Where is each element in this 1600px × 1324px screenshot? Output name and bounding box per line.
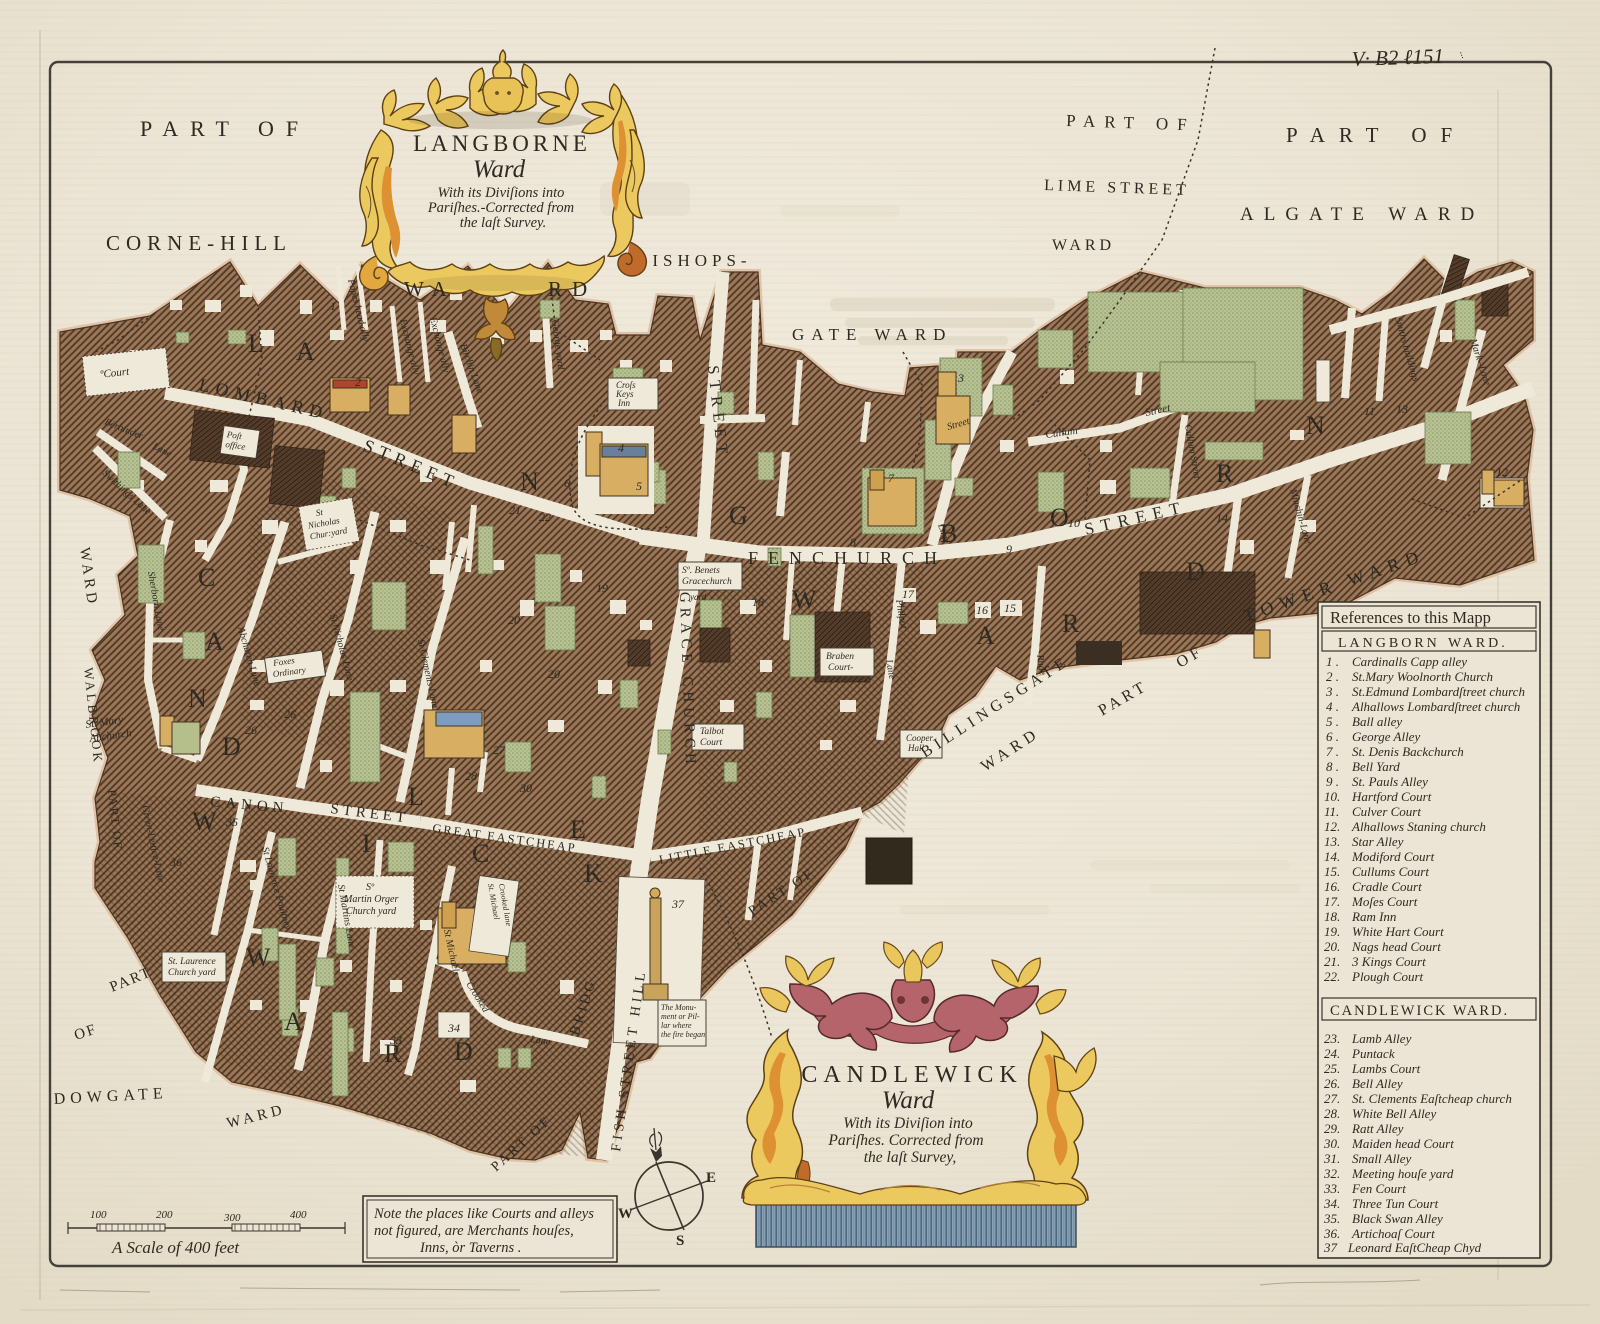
svg-text:15.: 15. bbox=[1324, 864, 1340, 879]
svg-text:20.: 20. bbox=[1324, 939, 1340, 954]
svg-text:15: 15 bbox=[1004, 601, 1016, 615]
svg-text:37: 37 bbox=[1323, 1240, 1338, 1255]
svg-text:Note the places like Courts an: Note the places like Courts and alleys bbox=[373, 1206, 594, 1222]
svg-text:A: A bbox=[284, 1007, 303, 1036]
svg-text:12: 12 bbox=[1496, 465, 1508, 479]
svg-text:St. Clements Eaſtcheap churc: St. Clements Eaſtcheap church bbox=[1352, 1091, 1512, 1106]
svg-text:200: 200 bbox=[156, 1209, 173, 1221]
svg-text:24.: 24. bbox=[1324, 1046, 1340, 1061]
svg-text:3: 3 bbox=[957, 371, 964, 385]
svg-text:E: E bbox=[706, 1170, 716, 1186]
svg-text:Lamb Alley: Lamb Alley bbox=[1351, 1031, 1412, 1046]
svg-text:Meeting houſe yard: Meeting houſe yard bbox=[1351, 1166, 1454, 1181]
svg-text:St.Edmund Lombardſtreet church: St.Edmund Lombardſtreet church bbox=[1352, 684, 1525, 699]
svg-text:Pariſhes. Corrected from: Pariſhes. Corrected from bbox=[827, 1132, 983, 1149]
svg-text:28: 28 bbox=[465, 769, 477, 783]
svg-text:33.: 33. bbox=[1323, 1181, 1340, 1196]
svg-text:35: 35 bbox=[225, 815, 238, 829]
svg-text:2 .: 2 . bbox=[1326, 669, 1339, 684]
svg-text:20: 20 bbox=[548, 667, 560, 681]
svg-text:26: 26 bbox=[245, 723, 257, 737]
svg-text:W: W bbox=[792, 585, 817, 614]
svg-text:2: 2 bbox=[355, 375, 361, 389]
svg-text:Culver Court: Culver Court bbox=[1352, 804, 1421, 819]
svg-text:Artichoaſ Court: Artichoaſ Court bbox=[1351, 1226, 1435, 1241]
svg-text:Cardinalls Capp alley: Cardinalls Capp alley bbox=[1352, 654, 1467, 669]
svg-text:O: O bbox=[1050, 503, 1069, 532]
svg-text:WARD: WARD bbox=[1052, 237, 1115, 254]
svg-text:CORNE-HILL: CORNE-HILL bbox=[106, 231, 292, 255]
svg-text:With its Diviſions into: With its Diviſions into bbox=[438, 185, 565, 201]
svg-text:CANDLEWICK WARD.: CANDLEWICK WARD. bbox=[1330, 1003, 1509, 1019]
svg-text:Pariſhes.-Corrected from: Pariſhes.-Corrected from bbox=[427, 200, 574, 216]
svg-text:36.: 36. bbox=[1323, 1226, 1340, 1241]
svg-text:7 .: 7 . bbox=[1326, 744, 1339, 759]
svg-text:6 .: 6 . bbox=[1326, 729, 1339, 744]
svg-text:26: 26 bbox=[284, 707, 296, 721]
svg-text:300: 300 bbox=[223, 1212, 241, 1224]
svg-text:PART OF: PART OF bbox=[140, 116, 310, 141]
svg-text:Lambs Court: Lambs Court bbox=[1351, 1061, 1421, 1076]
svg-text:19: 19 bbox=[596, 581, 608, 595]
svg-text:Small Alley: Small Alley bbox=[1352, 1151, 1412, 1166]
svg-text:20: 20 bbox=[508, 613, 520, 627]
svg-text:St. Denis Backchurch: St. Denis Backchurch bbox=[1352, 744, 1464, 759]
svg-text:not figured, are Merchants hou: not figured, are Merchants houſes, bbox=[374, 1223, 574, 1239]
svg-text:LANGBORNE: LANGBORNE bbox=[413, 131, 591, 156]
svg-text:N: N bbox=[520, 467, 539, 496]
svg-text:ALGATE WARD: ALGATE WARD bbox=[1240, 204, 1484, 225]
svg-text:1: 1 bbox=[330, 299, 336, 313]
svg-text:CANDLEWICK: CANDLEWICK bbox=[801, 1062, 1022, 1088]
svg-text:25.: 25. bbox=[1324, 1061, 1340, 1076]
svg-text:George Alley: George Alley bbox=[1352, 729, 1420, 744]
svg-text:the laſt Survey.: the laſt Survey. bbox=[460, 215, 547, 231]
svg-text:37: 37 bbox=[671, 897, 685, 911]
svg-text:Plough Court: Plough Court bbox=[1351, 969, 1424, 984]
svg-text:Black Swan Alley: Black Swan Alley bbox=[1352, 1211, 1443, 1226]
svg-text:W: W bbox=[246, 943, 271, 972]
svg-text:34: 34 bbox=[447, 1021, 460, 1035]
svg-text:27: 27 bbox=[493, 743, 506, 757]
svg-text:34.: 34. bbox=[1323, 1196, 1340, 1211]
svg-text:14.: 14. bbox=[1324, 849, 1340, 864]
svg-text:16: 16 bbox=[976, 603, 988, 617]
svg-text:8: 8 bbox=[850, 535, 856, 549]
svg-text:11.: 11. bbox=[1324, 804, 1339, 819]
svg-text:Cradle Court: Cradle Court bbox=[1352, 879, 1422, 894]
svg-text:26.: 26. bbox=[1324, 1076, 1340, 1091]
svg-text:Court-: Court- bbox=[828, 663, 853, 673]
svg-text:lar where: lar where bbox=[661, 1021, 692, 1030]
svg-text:17.: 17. bbox=[1324, 894, 1340, 909]
svg-text:PART OF: PART OF bbox=[1286, 123, 1466, 147]
svg-text:27.: 27. bbox=[1324, 1091, 1340, 1106]
svg-text:13: 13 bbox=[1396, 402, 1408, 416]
svg-text:6: 6 bbox=[564, 476, 570, 490]
svg-text:100: 100 bbox=[90, 1209, 107, 1221]
svg-text:3 Kings Court: 3 Kings Court bbox=[1351, 954, 1426, 969]
svg-text:RD: RD bbox=[548, 277, 597, 301]
svg-text:FENCHURCH: FENCHURCH bbox=[748, 548, 947, 568]
svg-text:V· B2 ℓ151: V· B2 ℓ151 bbox=[1351, 44, 1444, 71]
svg-text:N: N bbox=[1306, 411, 1325, 440]
svg-text:18: 18 bbox=[752, 595, 764, 609]
svg-text:23.: 23. bbox=[1324, 1031, 1340, 1046]
svg-text:18.: 18. bbox=[1324, 909, 1340, 924]
svg-text:A: A bbox=[296, 337, 315, 366]
svg-text:LANGBORN: LANGBORN bbox=[1338, 636, 1440, 651]
svg-text:GATE WARD: GATE WARD bbox=[792, 325, 952, 344]
svg-text:21: 21 bbox=[509, 503, 521, 517]
svg-text:Maiden head Court: Maiden head Court bbox=[1351, 1136, 1454, 1151]
svg-text:4: 4 bbox=[618, 441, 624, 455]
svg-text:K: K bbox=[584, 859, 603, 888]
svg-text:The Monu-: The Monu- bbox=[661, 1003, 697, 1012]
svg-text:A Scale of 400 feet: A Scale of 400 feet bbox=[111, 1238, 240, 1257]
svg-text:19.: 19. bbox=[1324, 924, 1340, 939]
svg-text:W: W bbox=[192, 807, 217, 836]
svg-text:33: 33 bbox=[389, 1033, 402, 1047]
svg-text:13.: 13. bbox=[1324, 834, 1340, 849]
svg-text:BISHOPS-: BISHOPS- bbox=[636, 251, 752, 270]
svg-text:the laſt Survey,: the laſt Survey, bbox=[864, 1149, 957, 1166]
svg-text:5 .: 5 . bbox=[1326, 714, 1339, 729]
svg-text:G: G bbox=[729, 501, 748, 530]
svg-text:Bell Alley: Bell Alley bbox=[1352, 1076, 1403, 1091]
svg-text:21.: 21. bbox=[1324, 954, 1340, 969]
svg-text:Inn: Inn bbox=[617, 398, 630, 408]
svg-text:Sº: Sº bbox=[366, 882, 375, 893]
svg-text:Moſes Court: Moſes Court bbox=[1351, 894, 1418, 909]
svg-text:Sº. Benets: Sº. Benets bbox=[682, 566, 720, 576]
svg-text:29.: 29. bbox=[1324, 1121, 1340, 1136]
svg-text:31.: 31. bbox=[1323, 1151, 1340, 1166]
svg-text:R: R bbox=[1062, 609, 1080, 638]
svg-text:Ram Inn: Ram Inn bbox=[1351, 909, 1396, 924]
svg-text:12.: 12. bbox=[1324, 819, 1340, 834]
svg-text:22: 22 bbox=[539, 510, 551, 524]
svg-text:Star Alley: Star Alley bbox=[1352, 834, 1404, 849]
svg-text:Inns, òr Taverns .: Inns, òr Taverns . bbox=[419, 1240, 521, 1256]
svg-text:36: 36 bbox=[169, 855, 182, 869]
svg-text:Ward: Ward bbox=[473, 156, 526, 183]
svg-text:Cullums Court: Cullums Court bbox=[1352, 864, 1429, 879]
svg-text:Modiford Court: Modiford Court bbox=[1351, 849, 1435, 864]
svg-text:Puntack: Puntack bbox=[1351, 1046, 1395, 1061]
svg-text:30: 30 bbox=[519, 781, 532, 795]
svg-text:I: I bbox=[362, 829, 371, 858]
svg-text:7: 7 bbox=[888, 471, 895, 485]
svg-text:Ratt Alley: Ratt Alley bbox=[1351, 1121, 1404, 1136]
svg-text:C: C bbox=[472, 839, 489, 868]
svg-text:Fen Court: Fen Court bbox=[1351, 1181, 1406, 1196]
svg-text:White Bell Alley: White Bell Alley bbox=[1352, 1106, 1436, 1121]
svg-text:W: W bbox=[618, 1206, 633, 1222]
svg-text:1 .: 1 . bbox=[1326, 654, 1339, 669]
svg-text:Three Tun Court: Three Tun Court bbox=[1352, 1196, 1439, 1211]
svg-text:D: D bbox=[454, 1037, 473, 1066]
svg-text:A: A bbox=[205, 627, 224, 656]
svg-text:Ward: Ward bbox=[882, 1087, 935, 1114]
svg-text:the fire began: the fire began bbox=[661, 1030, 705, 1039]
svg-text:Braben: Braben bbox=[826, 652, 854, 662]
svg-text:30.: 30. bbox=[1323, 1136, 1340, 1151]
svg-text:St. Laurence: St. Laurence bbox=[168, 957, 216, 967]
svg-text:B: B bbox=[940, 519, 957, 548]
svg-text:28.: 28. bbox=[1324, 1106, 1340, 1121]
svg-text:White Hart Court: White Hart Court bbox=[1352, 924, 1444, 939]
svg-text:Nags head Court: Nags head Court bbox=[1351, 939, 1441, 954]
svg-text:16.: 16. bbox=[1324, 879, 1340, 894]
svg-text:32.: 32. bbox=[1323, 1166, 1340, 1181]
svg-text:L: L bbox=[248, 329, 264, 358]
svg-text:L: L bbox=[408, 782, 424, 811]
svg-text:E: E bbox=[570, 815, 586, 844]
svg-text:3 .: 3 . bbox=[1325, 684, 1339, 699]
svg-text:11: 11 bbox=[1364, 404, 1375, 418]
svg-text:Church yard: Church yard bbox=[346, 906, 397, 917]
svg-text:C: C bbox=[198, 563, 215, 592]
svg-text:Talbot: Talbot bbox=[700, 727, 724, 737]
svg-text:5: 5 bbox=[636, 479, 642, 493]
svg-text:Alhallows Lombardſtreet chur: Alhallows Lombardſtreet church bbox=[1351, 699, 1520, 714]
svg-text:D: D bbox=[1186, 557, 1205, 586]
svg-text:400: 400 bbox=[290, 1209, 307, 1221]
svg-text:D: D bbox=[222, 732, 241, 761]
svg-text:35.: 35. bbox=[1323, 1211, 1340, 1226]
svg-text:Ball alley: Ball alley bbox=[1352, 714, 1402, 729]
svg-text:St.Mary Woolnorth Church: St.Mary Woolnorth Church bbox=[1352, 669, 1493, 684]
svg-text:Court: Court bbox=[700, 738, 723, 748]
svg-text:17: 17 bbox=[902, 587, 915, 601]
svg-text:ment or Pil-: ment or Pil- bbox=[661, 1012, 700, 1021]
svg-text:Leonard EaſtCheap Chyd: Leonard EaſtCheap Chyd bbox=[1347, 1240, 1482, 1255]
svg-text:10.: 10. bbox=[1324, 789, 1340, 804]
svg-text:Bell Yard: Bell Yard bbox=[1352, 759, 1400, 774]
svg-text:22.: 22. bbox=[1324, 969, 1340, 984]
svg-text:N: N bbox=[188, 684, 207, 713]
svg-text:St. Pauls Alley: St. Pauls Alley bbox=[1352, 774, 1428, 789]
svg-text:A: A bbox=[976, 621, 995, 650]
svg-text:9: 9 bbox=[1006, 542, 1012, 556]
svg-text:S: S bbox=[676, 1233, 684, 1249]
svg-text:4 .: 4 . bbox=[1326, 699, 1339, 714]
svg-text:With its Diviſion into: With its Diviſion into bbox=[843, 1115, 973, 1132]
svg-text:10: 10 bbox=[1068, 516, 1080, 530]
svg-text:References to this Mapp: References to this Mapp bbox=[1330, 608, 1491, 627]
svg-text:Alhallows Staning church: Alhallows Staning church bbox=[1351, 819, 1486, 834]
svg-text:Gracechurch: Gracechurch bbox=[682, 577, 732, 587]
svg-text:Hartford Court: Hartford Court bbox=[1351, 789, 1432, 804]
svg-text:Martin Orger: Martin Orger bbox=[343, 894, 398, 905]
svg-text:14: 14 bbox=[1216, 511, 1228, 525]
svg-text:WARD.: WARD. bbox=[1448, 636, 1508, 651]
svg-text:R: R bbox=[1216, 459, 1234, 488]
svg-text:9 .: 9 . bbox=[1326, 774, 1339, 789]
svg-text:Church yard: Church yard bbox=[168, 968, 216, 978]
svg-text:8 .: 8 . bbox=[1326, 759, 1339, 774]
svg-text:WA: WA bbox=[404, 277, 457, 301]
